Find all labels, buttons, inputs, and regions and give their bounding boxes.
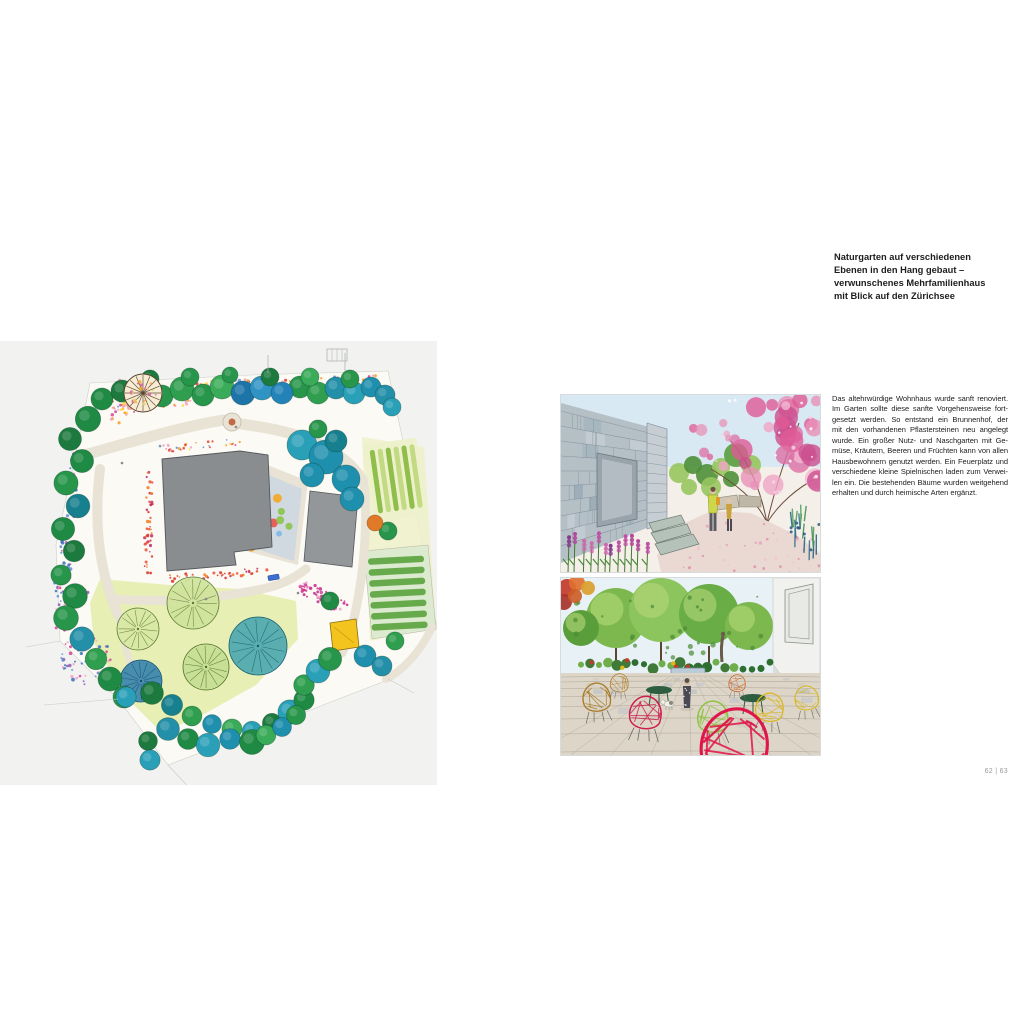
page-number: 62 | 63 [985, 768, 1008, 775]
garden-site-plan-illustration [0, 341, 437, 785]
headline-line: verwunschenes Mehrfamilienhaus [834, 277, 1014, 290]
body-line: erhalten und durch heimische Arten ergän… [832, 488, 1008, 498]
photo-bottom-figure [561, 578, 820, 755]
photo-top-figure [561, 395, 820, 572]
body-line: len ein. Die bestehenden Bäume wurden we… [832, 478, 1008, 488]
body-text: Das altehrwürdige Wohnhaus wurde sanft r… [832, 394, 1008, 499]
body-line: verschiedene kleine Spielnischen laden z… [832, 467, 1008, 477]
courtyard-chairs-illustration [561, 578, 820, 755]
book-spread: Naturgarten auf verschiedenen Ebenen in … [0, 0, 1024, 1024]
body-line: wurde. Ein großer Nutz- und Naschgarten … [832, 436, 1008, 446]
body-line: mit den vorhandenen Pflastersteinen neu … [832, 425, 1008, 435]
headline-line: mit Blick auf den Zürichsee [834, 290, 1014, 303]
body-line: müse, Kräutern, Beeren und Früchten kann… [832, 446, 1008, 456]
headline-line: Naturgarten auf verschiedenen [834, 251, 1014, 264]
site-plan-figure [0, 341, 437, 785]
headline-line: Ebenen in den Hang gebaut – [834, 264, 1014, 277]
body-line: Das altehrwürdige Wohnhaus wurde sanft r… [832, 394, 1008, 404]
body-line: Im Garten sollte diese sanfte Vorgehensw… [832, 404, 1008, 414]
body-line: Hausbewohnern genutzt werden. Ein Feuerp… [832, 457, 1008, 467]
body-line: gesetzt werden. So entstand ein Brunnenh… [832, 415, 1008, 425]
headline: Naturgarten auf verschiedenen Ebenen in … [834, 251, 1014, 303]
stone-house-blossom-illustration [561, 395, 820, 572]
